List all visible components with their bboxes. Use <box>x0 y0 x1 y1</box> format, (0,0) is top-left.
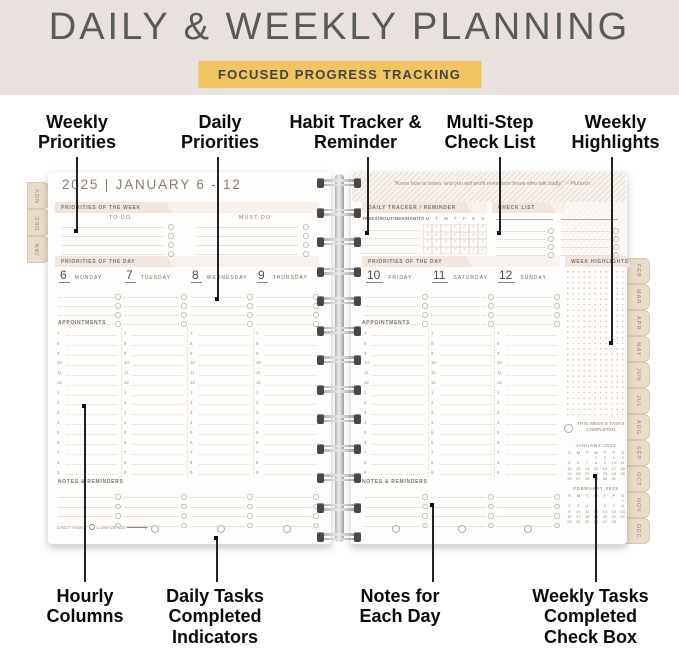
hour-line <box>133 355 184 356</box>
product-infographic: DAILY & WEEKLY PLANNING FOCUSED PROGRESS… <box>0 0 679 655</box>
hour-row: 7 <box>122 328 186 338</box>
ribbon-daily-tracker: DAILY TRACKER / REMINDER <box>362 202 487 213</box>
day-priority-line <box>190 307 245 316</box>
spiral-wire <box>320 356 358 359</box>
hour-row: 1 <box>188 388 252 398</box>
hour-row: 7 <box>254 328 318 338</box>
spiral-clamp <box>354 532 361 542</box>
day-priority-circle <box>247 312 253 318</box>
week-priority-circle <box>303 224 309 230</box>
check-list-circle <box>548 244 554 250</box>
hour-line <box>506 375 557 376</box>
month-tab-aug-6: AUG <box>626 414 650 440</box>
day-priority-circle <box>115 294 121 300</box>
notes-circle <box>313 513 319 519</box>
hour-column-l0: 789101112123456789 <box>55 328 119 477</box>
callout-dot-hourly-columns <box>82 404 86 408</box>
section-label-priorities-of-day: PRIORITIES OF THE DAY <box>61 259 135 265</box>
hour-line <box>199 404 250 405</box>
hour-row: 12 <box>254 378 318 388</box>
hour-row: 12 <box>55 378 119 388</box>
hour-row: 1 <box>495 388 559 398</box>
spiral-wire <box>320 445 358 448</box>
tracker-check-cell: ✓ <box>460 239 469 247</box>
hour-line <box>133 375 184 376</box>
notes-line <box>190 499 245 508</box>
hour-line <box>66 434 117 435</box>
hour-line <box>373 404 424 405</box>
spiral-wire <box>320 238 358 241</box>
hour-line <box>66 454 117 455</box>
notes-line <box>124 499 179 508</box>
day-priority-circle <box>181 321 187 327</box>
day-priority-line <box>124 316 179 325</box>
hour-line <box>199 395 250 396</box>
day-number: 6 <box>59 269 70 283</box>
day-priority-line <box>190 316 245 325</box>
hour-row: 2 <box>362 398 426 408</box>
hour-row: 4 <box>254 417 318 427</box>
notes-circle <box>247 523 253 529</box>
hour-row: 7 <box>254 447 318 457</box>
notes-line <box>256 508 311 517</box>
hour-row: 10 <box>429 358 493 368</box>
notes-circle <box>115 494 121 500</box>
callout-line-weekly-highlights <box>611 157 613 343</box>
day-priority-line <box>431 298 486 307</box>
day-priority-line <box>431 316 486 325</box>
notes-circle <box>313 523 319 529</box>
spiral-wire <box>320 479 358 482</box>
tracker-check-cell: ✓ <box>432 224 441 232</box>
callout-line-weekly-priorities <box>76 157 78 231</box>
hour-row: 11 <box>362 368 426 378</box>
notes-circle <box>313 494 319 500</box>
spiral-clamp <box>317 473 324 483</box>
section-label-priorities-of-week: PRIORITIES OF THE WEEK <box>61 205 141 211</box>
hour-line <box>199 414 250 415</box>
day-name: MONDAY <box>75 276 103 281</box>
notes-circle <box>115 504 121 510</box>
hour-row: 9 <box>55 467 119 477</box>
hour-number: 9 <box>55 471 66 477</box>
day-name: WEDNESDAY <box>207 276 248 281</box>
hour-row: 5 <box>254 427 318 437</box>
hour-row: 8 <box>362 338 426 348</box>
tracker-check-cell: ✓ <box>460 247 469 255</box>
hour-column-r2: 789101112123456789 <box>494 328 559 477</box>
hour-line <box>133 404 184 405</box>
hour-row: 8 <box>122 457 186 467</box>
tasks-routines-label: TASKS/ROUTINES/HABITS <box>362 216 424 221</box>
spiral-clamp <box>317 178 324 188</box>
notes-circle <box>247 513 253 519</box>
day-priority-circle <box>554 321 560 327</box>
section-label-priorities-of-day-right: PRIORITIES OF THE DAY <box>368 259 442 265</box>
hour-line <box>133 335 184 336</box>
hour-row: 8 <box>254 457 318 467</box>
callout-line-habit-tracker <box>367 157 369 233</box>
notes-line <box>431 508 486 517</box>
spiral-clamp <box>317 237 324 247</box>
day-priority-circle <box>488 303 494 309</box>
day-priority-line <box>124 298 179 307</box>
day-priority-line <box>58 298 113 307</box>
mini-calendar-title: JANUARY 2025 <box>565 443 627 450</box>
hour-line <box>506 404 557 405</box>
hour-line <box>265 345 316 346</box>
day-priority-circle <box>247 303 253 309</box>
spiral-wire <box>320 272 358 275</box>
ribbon-check-list: CHECK LIST <box>492 202 565 213</box>
day-priority-circle <box>115 303 121 309</box>
daily-completed-circle <box>217 525 225 533</box>
notes-circle <box>181 504 187 510</box>
hour-line <box>440 345 491 346</box>
hour-line <box>133 365 184 366</box>
callout-line-daily-tasks-completed <box>216 536 218 582</box>
check-list-line <box>496 248 545 256</box>
day-name: THURSDAY <box>273 276 308 281</box>
tracker-check-cell: ✓ <box>478 224 487 232</box>
month-tab-dec-10: DEC <box>626 518 650 544</box>
ribbon-priorities-of-week: PRIORITIES OF THE WEEK <box>55 202 319 213</box>
hour-line <box>199 365 250 366</box>
hour-row: 3 <box>429 407 493 417</box>
hour-line <box>373 454 424 455</box>
hour-line <box>66 444 117 445</box>
day-priority-line <box>58 307 113 316</box>
spiral-clamp <box>317 503 324 513</box>
hour-row: 6 <box>429 437 493 447</box>
hour-line <box>133 454 184 455</box>
day-priority-circle <box>422 321 428 327</box>
tracker-check-cell: ✓ <box>441 232 450 240</box>
spiral-clamp <box>317 326 324 336</box>
month-tab-jun-4: JUN <box>626 362 650 388</box>
callout-notes-each-day: Notes for Each Day <box>340 586 460 627</box>
spiral-wire <box>320 533 358 536</box>
hour-row: 3 <box>122 407 186 417</box>
subtitle-badge: FOCUSED PROGRESS TRACKING <box>198 61 481 88</box>
hour-line <box>440 444 491 445</box>
hour-row: 4 <box>55 417 119 427</box>
hour-row: 10 <box>188 358 252 368</box>
spiral-wire <box>320 390 358 393</box>
week-priority-circle <box>168 233 174 239</box>
hour-row: 3 <box>254 407 318 417</box>
tracker-check-cell: ✓ <box>451 232 460 240</box>
hour-line <box>199 375 250 376</box>
hour-row: 7 <box>495 328 559 338</box>
hour-row: 12 <box>188 378 252 388</box>
hour-line <box>66 375 117 376</box>
notes-line <box>497 499 552 508</box>
daily-completed-circle <box>392 525 400 533</box>
spiral-wire <box>320 504 358 507</box>
tracker-day-letter: S <box>478 216 487 221</box>
check-list-circle <box>548 228 554 234</box>
hour-row: 8 <box>188 338 252 348</box>
hour-line <box>373 414 424 415</box>
hour-line <box>265 395 316 396</box>
hour-number: 9 <box>188 471 199 477</box>
hour-row: 9 <box>429 467 493 477</box>
hour-column-r1: 789101112123456789 <box>428 328 493 477</box>
tracker-check-cell: ✓ <box>423 247 432 255</box>
hour-line <box>199 444 250 445</box>
day-priority-line <box>58 289 113 298</box>
hour-line <box>440 375 491 376</box>
spiral-wire <box>320 327 358 330</box>
hour-row: 7 <box>429 328 493 338</box>
hour-line <box>133 424 184 425</box>
check-list-header-line <box>496 219 553 220</box>
hour-line <box>373 345 424 346</box>
hour-line <box>66 365 117 366</box>
day-priority-circle <box>422 312 428 318</box>
notes-line <box>256 499 311 508</box>
washi-hatch-band <box>352 172 626 202</box>
notes-circle <box>181 513 187 519</box>
hour-row: 8 <box>188 457 252 467</box>
day-priority-line <box>256 298 311 307</box>
hour-line <box>373 474 424 475</box>
hour-line <box>133 464 184 465</box>
hour-line <box>506 335 557 336</box>
callout-line-notes-each-day <box>432 503 434 582</box>
hour-line <box>265 404 316 405</box>
hour-line <box>66 355 117 356</box>
hour-row: 9 <box>254 348 318 358</box>
hour-line <box>440 414 491 415</box>
day-priority-line <box>365 316 420 325</box>
mini-calendar-day: 27 <box>600 519 609 524</box>
hour-line <box>265 355 316 356</box>
check-list-line <box>561 232 610 240</box>
hour-row: 3 <box>188 407 252 417</box>
tracker-check-cell: ✓ <box>451 224 460 232</box>
hour-line <box>133 395 184 396</box>
hour-row: 7 <box>188 447 252 457</box>
notes-line <box>365 489 420 498</box>
hour-line <box>265 444 316 445</box>
hour-row: 2 <box>122 398 186 408</box>
daily-completed-circle <box>524 525 532 533</box>
hour-line <box>506 464 557 465</box>
tracker-check-cell: ✓ <box>478 247 487 255</box>
hour-line <box>440 355 491 356</box>
month-tab-jul-5: JUL <box>626 388 650 414</box>
hour-row: 1 <box>55 388 119 398</box>
hour-line <box>373 444 424 445</box>
spiral-wire <box>320 268 358 271</box>
check-list-circle <box>613 236 619 242</box>
spiral-clamp <box>317 385 324 395</box>
hour-line <box>265 365 316 366</box>
day-header-tuesday: 7TUESDAY <box>125 266 185 283</box>
spiral-wire <box>320 297 358 300</box>
spiral-clamp <box>354 414 361 424</box>
hour-line <box>66 424 117 425</box>
daily-completed-circle <box>151 525 159 533</box>
hour-line <box>506 414 557 415</box>
hour-number: 9 <box>122 471 133 477</box>
day-priority-circle <box>313 312 319 318</box>
notes-line <box>58 518 113 527</box>
spiral-clamp <box>354 237 361 247</box>
hour-line <box>506 345 557 346</box>
hour-line <box>373 335 424 336</box>
hour-line <box>199 434 250 435</box>
hour-row: 7 <box>429 447 493 457</box>
spiral-clamp <box>354 385 361 395</box>
week-priority-circle <box>303 251 309 257</box>
spiral-clamp <box>317 532 324 542</box>
spiral-wire <box>320 386 358 389</box>
spiral-wire <box>320 420 358 423</box>
week-priority-circle <box>168 251 174 257</box>
tracker-check-cell: ✓ <box>478 232 487 240</box>
section-label-check-list: CHECK LIST <box>498 205 535 211</box>
tracker-check-cell: ✓ <box>451 239 460 247</box>
hour-line <box>199 355 250 356</box>
hour-row: 1 <box>429 388 493 398</box>
hour-line <box>199 385 250 386</box>
hour-line <box>265 424 316 425</box>
spiral-clamp <box>354 355 361 365</box>
month-tab-feb-0: FEB <box>626 258 650 284</box>
ribbon-week-highlights: WEEK HIGHLIGHTS <box>565 256 626 267</box>
hour-row: 8 <box>495 457 559 467</box>
page-title: DAILY & WEEKLY PLANNING <box>0 6 679 49</box>
callout-habit-tracker: Habit Tracker & Reminder <box>283 112 428 153</box>
hour-row: 4 <box>188 417 252 427</box>
hour-row: 9 <box>188 467 252 477</box>
day-priority-line <box>497 316 552 325</box>
notes-circle <box>422 504 428 510</box>
hour-row: 8 <box>55 457 119 467</box>
hour-row: 10 <box>254 358 318 368</box>
hour-row: 7 <box>362 447 426 457</box>
hour-line <box>265 464 316 465</box>
hour-line <box>506 395 557 396</box>
hour-line <box>440 404 491 405</box>
hour-row: 2 <box>429 398 493 408</box>
notes-line <box>365 499 420 508</box>
hour-line <box>440 474 491 475</box>
hour-row: 4 <box>429 417 493 427</box>
hour-column-l1: 789101112123456789 <box>121 328 186 477</box>
spiral-wire <box>320 331 358 334</box>
month-tab-apr-2: APR <box>626 310 650 336</box>
hour-row: 12 <box>362 378 426 388</box>
spiral-wire <box>320 184 358 187</box>
week-priority-circle <box>168 242 174 248</box>
week-highlights-dot-grid <box>565 269 625 415</box>
day-name: FRIDAY <box>388 276 412 281</box>
check-list-circle <box>613 244 619 250</box>
spiral-clamp <box>354 326 361 336</box>
hour-row: 10 <box>495 358 559 368</box>
hour-row: 8 <box>122 338 186 348</box>
hour-line <box>199 454 250 455</box>
hour-row: 1 <box>362 388 426 398</box>
day-priority-circle <box>181 294 187 300</box>
hour-row: 9 <box>495 348 559 358</box>
check-list-circle <box>613 228 619 234</box>
day-name: TUESDAY <box>141 276 171 281</box>
spiral-wire <box>320 361 358 364</box>
notes-line <box>431 489 486 498</box>
hour-row: 9 <box>362 467 426 477</box>
hour-line <box>506 385 557 386</box>
callout-daily-tasks-completed: Daily Tasks Completed Indicators <box>150 586 280 647</box>
hour-row: 6 <box>254 437 318 447</box>
day-priority-circle <box>181 312 187 318</box>
notes-line <box>256 489 311 498</box>
tracker-day-letter: T <box>451 216 460 221</box>
notes-circle <box>422 523 428 529</box>
hour-line <box>66 404 117 405</box>
hour-line <box>66 385 117 386</box>
day-priority-line <box>431 289 486 298</box>
hour-row: 7 <box>188 328 252 338</box>
hour-row: 11 <box>122 368 186 378</box>
spiral-wire <box>320 302 358 305</box>
notes-label-left: NOTES & REMINDERS <box>58 479 124 485</box>
hour-row: 5 <box>429 427 493 437</box>
day-number: 10 <box>366 269 383 283</box>
hour-row: 4 <box>495 417 559 427</box>
spiral-clamp <box>354 208 361 218</box>
hour-row: 7 <box>362 328 426 338</box>
hour-line <box>66 414 117 415</box>
spiral-wire <box>320 474 358 477</box>
spiral-clamp <box>317 444 324 454</box>
week-priority-line <box>197 220 298 228</box>
hour-line <box>133 414 184 415</box>
mini-calendar-day: 26 <box>565 476 574 481</box>
hour-row: 6 <box>362 437 426 447</box>
callout-dot-weekly-tasks-checkbox <box>593 474 597 478</box>
tracker-check-cell: ✓ <box>469 247 478 255</box>
callout-line-daily-priorities <box>217 157 219 299</box>
hour-row: 6 <box>122 437 186 447</box>
notes-line <box>497 489 552 498</box>
hour-line <box>133 345 184 346</box>
hour-line <box>265 335 316 336</box>
hour-column-l2: 789101112123456789 <box>187 328 252 477</box>
month-tab-may-3: MAY <box>626 336 650 362</box>
hour-line <box>440 424 491 425</box>
mini-calendar-day: 28 <box>583 476 592 481</box>
hour-line <box>265 385 316 386</box>
hour-row: 7 <box>122 447 186 457</box>
ribbon-tab: WEEK HIGHLIGHTS <box>565 256 632 267</box>
tracker-check-cell: ✓ <box>423 239 432 247</box>
hour-row: 7 <box>55 328 119 338</box>
week-priority-line <box>197 247 298 255</box>
hour-row: 8 <box>495 338 559 348</box>
hour-row: 9 <box>362 348 426 358</box>
callout-weekly-highlights: Weekly Highlights <box>553 112 678 153</box>
callout-dot-daily-priorities <box>215 297 219 301</box>
mini-calendar-day: 30 <box>600 476 609 481</box>
tracker-day-letter: W <box>441 216 450 221</box>
notes-circle <box>422 513 428 519</box>
month-tab-sep-7: SEP <box>626 440 650 466</box>
